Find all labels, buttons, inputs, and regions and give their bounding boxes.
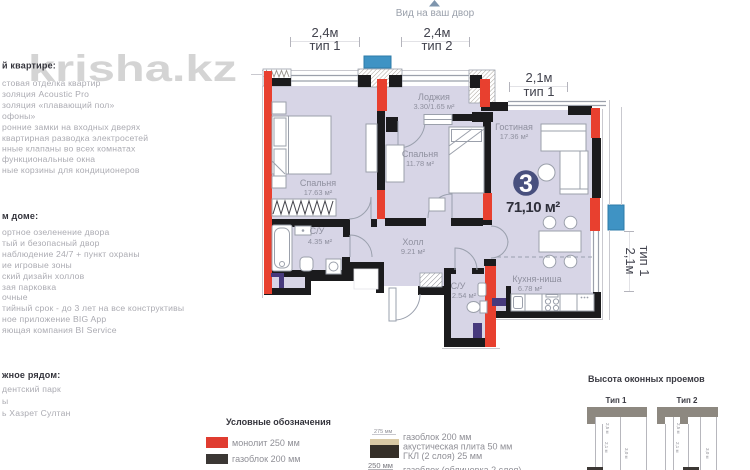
svg-text:2,1м: 2,1м [623, 247, 638, 274]
svg-text:Высота оконных проемов: Высота оконных проемов [588, 374, 705, 384]
svg-text:стовая отделка квартир: стовая отделка квартир [2, 78, 101, 88]
svg-text:2,5 м: 2,5 м [605, 423, 610, 434]
svg-text:зая парковка: зая парковка [2, 282, 56, 292]
svg-text:очные: очные [2, 292, 28, 302]
svg-text:золяция «плавающий пол»: золяция «плавающий пол» [2, 100, 115, 110]
svg-text:3: 3 [519, 170, 533, 198]
svg-text:наблюдение 24/7 + пункт охраны: наблюдение 24/7 + пункт охраны [2, 249, 140, 259]
svg-text:11.78 м²: 11.78 м² [406, 159, 434, 168]
svg-text:нные клапаны во всех комнатах: нные клапаны во всех комнатах [2, 144, 136, 154]
svg-text:Гостиная: Гостиная [495, 122, 533, 132]
svg-text:2.54 м²: 2.54 м² [452, 291, 477, 300]
svg-text:17.63 м²: 17.63 м² [304, 188, 333, 197]
svg-text:тый и безопасный двор: тый и безопасный двор [2, 238, 100, 248]
svg-text:золяция Acoustic Pro: золяция Acoustic Pro [2, 89, 89, 99]
svg-text:ский дизайн холлов: ский дизайн холлов [2, 271, 85, 281]
svg-text:офоны»: офоны» [2, 111, 36, 121]
svg-text:дентский парк: дентский парк [2, 384, 61, 394]
svg-text:тип 1: тип 1 [637, 245, 652, 276]
svg-text:тип 2: тип 2 [421, 38, 452, 53]
svg-text:3,0 м: 3,0 м [705, 448, 710, 459]
svg-text:9.21 м²: 9.21 м² [401, 247, 426, 256]
svg-text:жное рядом:: жное рядом: [1, 370, 60, 380]
svg-text:Тип 1: Тип 1 [605, 396, 627, 405]
svg-text:газоблок (облицовка 2 слоя): газоблок (облицовка 2 слоя) [403, 465, 521, 470]
svg-text:тип 1: тип 1 [523, 84, 554, 99]
svg-text:6.78 м²: 6.78 м² [518, 284, 543, 293]
svg-text:ное приложение BIG App: ное приложение BIG App [2, 314, 106, 324]
svg-text:250 мм: 250 мм [368, 461, 393, 470]
svg-text:м доме:: м доме: [2, 211, 38, 221]
svg-text:2,1м: 2,1м [525, 70, 552, 85]
svg-text:17.36 м²: 17.36 м² [500, 132, 529, 141]
svg-text:3,0 м: 3,0 м [624, 448, 629, 459]
svg-text:2,1 м: 2,1 м [604, 442, 609, 453]
svg-text:акустическая плита 50 мм: акустическая плита 50 мм [403, 442, 512, 452]
svg-text:ГКЛ (2 слоя) 25 мм: ГКЛ (2 слоя) 25 мм [403, 451, 482, 461]
svg-text:тийный срок - до 3 лет на все: тийный срок - до 3 лет на все конструкти… [2, 303, 184, 313]
svg-text:ь Хазрет Султан: ь Хазрет Султан [2, 408, 71, 418]
svg-text:ортное озеленение двора: ортное озеленение двора [2, 227, 109, 237]
svg-text:Вид на ваш двор: Вид на ваш двор [396, 8, 475, 19]
svg-text:ные корзины для кондиционеров: ные корзины для кондиционеров [2, 165, 140, 175]
svg-text:газоблок 200 мм: газоблок 200 мм [232, 454, 300, 464]
svg-text:яющая компания BI Service: яющая компания BI Service [2, 325, 117, 335]
svg-text:4.35 м²: 4.35 м² [308, 237, 333, 246]
svg-text:квартирная разводка электросет: квартирная разводка электросетей [2, 133, 148, 143]
svg-text:функциональные окна: функциональные окна [2, 154, 95, 164]
svg-text:ы: ы [2, 396, 8, 406]
svg-text:3.30/1.65 м²: 3.30/1.65 м² [413, 102, 455, 111]
svg-text:ие игровые зоны: ие игровые зоны [2, 260, 72, 270]
svg-text:2,5 м: 2,5 м [676, 423, 681, 434]
svg-text:монолит 250 мм: монолит 250 мм [232, 438, 300, 448]
svg-text:2,1 м: 2,1 м [675, 442, 680, 453]
svg-text:Лоджия: Лоджия [418, 92, 450, 102]
svg-text:Холл: Холл [402, 237, 423, 247]
svg-text:тип 1: тип 1 [309, 38, 340, 53]
svg-text:Тип 2: Тип 2 [676, 396, 698, 405]
svg-text:газоблок 200 мм: газоблок 200 мм [403, 432, 471, 442]
svg-text:71,10 м²: 71,10 м² [506, 199, 560, 216]
svg-text:С/У: С/У [310, 226, 325, 236]
svg-text:ронние замки на входных дверях: ронние замки на входных дверях [2, 122, 141, 132]
svg-text:С/У: С/У [451, 281, 466, 291]
svg-text:Кухня-ниша: Кухня-ниша [512, 274, 561, 284]
svg-text:Спальня: Спальня [300, 178, 336, 188]
svg-text:й квартире:: й квартире: [2, 61, 56, 71]
svg-text:Спальня: Спальня [402, 149, 438, 159]
svg-text:Условные обозначения: Условные обозначения [226, 417, 331, 427]
